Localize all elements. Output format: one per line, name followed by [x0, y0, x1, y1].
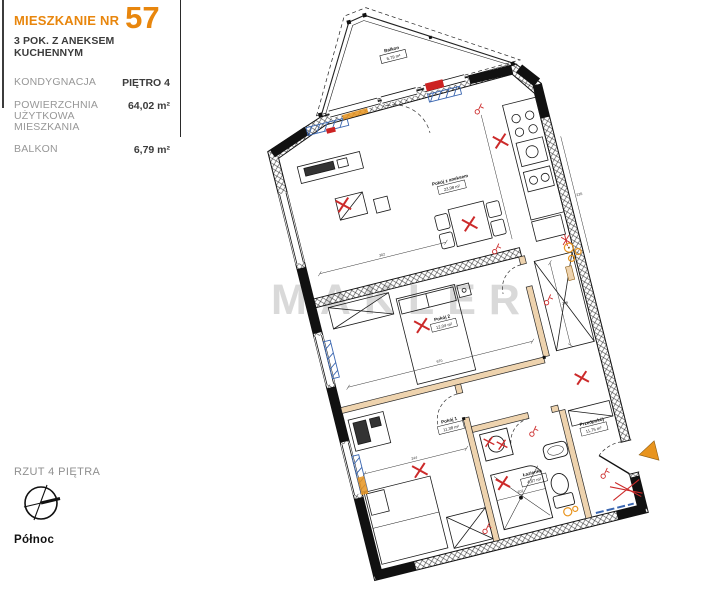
rotated-plan-group: Balkon 6,79 m²: [240, 0, 671, 581]
detail-row-area: POWIERZCHNIA UŻYTKOWA MIESZKANIA 64,02 m…: [14, 100, 170, 133]
balcony-room-area: 6,79 m²: [386, 53, 402, 61]
area-value: 64,02 m²: [128, 100, 170, 112]
apartment-subtitle: 3 POK. Z ANEKSEM KUCHENNYM: [14, 35, 170, 59]
hall-label: Przedpokój 11,75 m²: [578, 416, 608, 436]
svg-text:670: 670: [436, 359, 443, 364]
bedroom1-label: Pokój 1 11,38 m²: [436, 415, 465, 435]
svg-text:4,87 m²: 4,87 m²: [527, 476, 543, 484]
floor-value: PIĘTRO 4: [122, 77, 170, 89]
plan-view-block: RZUT 4 PIĘTRA Północ: [14, 466, 100, 546]
entrance: [597, 434, 666, 504]
dimension-lines: [285, 98, 642, 531]
apartment-number: 57: [125, 4, 159, 32]
living-room-furniture: [295, 97, 570, 293]
apartment-title: MIESZKANIE NR 57: [14, 4, 170, 32]
area-label: POWIERZCHNIA UŻYTKOWA MIESZKANIA: [14, 100, 110, 133]
detail-row-balcony: BALKON 6,79 m²: [14, 144, 170, 156]
north-label: Północ: [14, 534, 100, 546]
entrance-arrow-icon: [637, 441, 659, 465]
detail-row-floor: KONDYGNACJA PIĘTRO 4: [14, 77, 170, 89]
exterior-walls: [262, 59, 649, 580]
svg-text:206: 206: [562, 301, 569, 306]
svg-text:202: 202: [517, 489, 524, 494]
living-room-label: Pokój z aneksem 23,98 m²: [431, 173, 470, 196]
apartment-info-panel: MIESZKANIE NR 57 3 POK. Z ANEKSEM KUCHEN…: [14, 4, 170, 156]
bathroom-label: Łazienka 4,87 m²: [519, 467, 548, 487]
north-compass-icon: [14, 478, 84, 528]
apartment-label: MIESZKANIE NR: [14, 13, 119, 32]
svg-text:Pokój 1: Pokój 1: [441, 416, 458, 425]
svg-text:302: 302: [379, 252, 386, 257]
balcony-value: 6,79 m²: [134, 144, 170, 156]
balcony-room-label: Balkon: [384, 45, 400, 54]
svg-text:235: 235: [576, 192, 583, 197]
svg-text:Pokój 2: Pokój 2: [434, 313, 451, 322]
boiler-icon: [563, 505, 579, 516]
bedroom2-label: Pokój 2 12,04 m²: [429, 312, 458, 332]
svg-text:244: 244: [411, 456, 418, 461]
balcony-label: BALKON: [14, 144, 110, 155]
floor-label: KONDYGNACJA: [14, 77, 110, 88]
plan-view-label: RZUT 4 PIĘTRA: [14, 466, 100, 478]
